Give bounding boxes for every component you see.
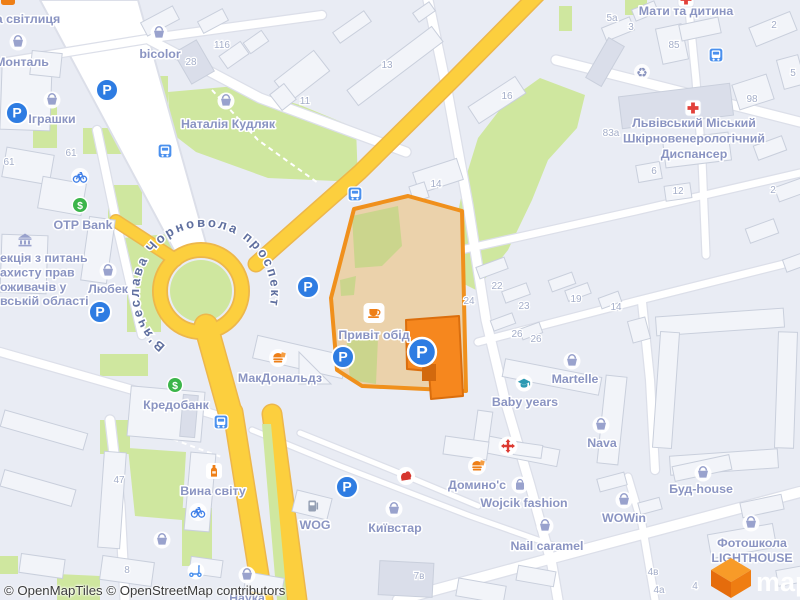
poi-label[interactable]: Київстар [368,521,422,535]
poi-label[interactable]: Іграшки [28,112,75,126]
svg-text:P: P [303,279,312,295]
bus-icon[interactable] [709,48,723,62]
housenumber: 22 [491,281,503,292]
shopcut-icon[interactable] [1,0,15,5]
housenumber: 13 [381,60,393,71]
parking-icon[interactable]: P [408,338,436,366]
medical-icon[interactable] [685,100,701,116]
housenumber: 4а [653,585,665,596]
cafe-icon[interactable] [364,303,385,323]
parking-icon[interactable]: P [96,79,118,101]
housenumber: 6 [651,166,657,177]
housenumber: 8 [124,565,130,576]
housenumber: 19 [570,294,582,305]
burger-icon[interactable] [269,349,287,367]
housenumber: 14 [610,302,622,313]
recycle-icon[interactable]: ♻ [634,64,650,80]
bottle-icon[interactable] [206,463,222,479]
basket-icon[interactable] [218,93,235,110]
svg-text:P: P [102,82,111,98]
maptiler-wordmark: maptiler [756,567,800,597]
housenumber: 14 [430,179,442,190]
housenumber: 5а [606,13,618,24]
housenumber: 61 [3,157,15,168]
bus-icon[interactable] [214,415,228,429]
map-canvas[interactable]: В'ячеслава Чорновола проспект 6161116281… [0,0,800,600]
basket-icon[interactable] [44,92,61,109]
maptiler-logo[interactable]: maptiler [703,550,800,600]
svg-text:P: P [95,304,104,320]
housenumber: 61 [65,148,77,159]
svg-text:♻: ♻ [636,65,648,80]
bike-icon[interactable] [189,503,207,521]
parking-icon[interactable]: P [6,102,28,124]
poi-label[interactable]: Буд-house [669,482,733,496]
svg-text:P: P [416,342,428,362]
housenumber: 24 [463,296,475,307]
housenumber: 16 [501,91,513,102]
basket-icon[interactable] [593,417,610,434]
basket-icon[interactable] [616,492,633,509]
svg-text:P: P [338,349,347,365]
poi-label[interactable]: Nava [587,436,617,450]
bag-icon[interactable] [512,477,529,494]
poi-label[interactable]: МакДональдз [238,371,322,385]
poi-label[interactable]: bicolor [139,47,180,61]
basket-icon[interactable] [695,465,712,482]
bike-icon[interactable] [71,168,89,186]
poi-label[interactable]: Домино'c [448,478,506,492]
basket-icon[interactable] [154,532,171,549]
housenumber: 12 [672,186,684,197]
attribution[interactable]: © OpenMapTiles © OpenStreetMap contribut… [4,583,285,598]
housenumber: 116 [214,40,230,51]
housenumber: 2 [770,185,776,196]
housenumber: 5 [790,68,796,79]
poi-label[interactable]: WOWin [602,511,646,525]
basket-icon[interactable] [10,34,27,51]
housenumber: 23 [518,301,530,312]
poi-label[interactable]: Wojcik fashion [480,496,567,510]
housenumber: 4в [648,567,659,578]
housenumber: 26 [530,334,542,345]
housenumber: 28 [185,57,197,68]
poi-label[interactable]: OTP Bank [54,218,113,232]
scooter-icon[interactable] [188,563,205,580]
atm-icon[interactable]: $ [167,377,184,394]
poi-label[interactable]: WOG [300,518,331,532]
svg-text:P: P [12,105,21,121]
basket-icon[interactable] [100,263,117,280]
basket-icon[interactable] [537,518,554,535]
housenumber: 47 [113,475,125,486]
housenumber: 2 [771,20,777,31]
bus-icon[interactable] [158,144,172,158]
gradcap-icon[interactable] [516,375,533,392]
poi-label[interactable]: Наталія Кудляк [181,117,276,131]
parking-icon[interactable]: P [336,476,358,498]
svg-text:$: $ [77,200,83,212]
burger-icon[interactable] [468,457,486,475]
housenumber: 26 [511,329,523,340]
poi-label[interactable]: Кредобанк [143,398,209,412]
poi-label[interactable]: Вина світу [180,484,246,498]
arrows-icon[interactable] [499,437,518,456]
poi-label[interactable]: Martelle [552,372,599,386]
housenumber: 7в [414,571,425,582]
poi-label[interactable]: а світлиця [0,12,60,26]
basket-icon[interactable] [564,353,581,370]
svg-text:P: P [342,479,351,495]
housenumber: 98 [746,94,758,105]
housenumber: 3 [628,22,634,33]
bus-icon[interactable] [348,187,362,201]
atm-icon[interactable]: $ [72,197,89,214]
redemblem-icon[interactable] [397,467,415,485]
parking-icon[interactable]: P [89,301,111,323]
housenumber: 11 [300,96,311,107]
poi-label[interactable]: Привіт обід [338,328,409,342]
poi-label[interactable]: Мати та дитина [639,4,734,18]
basket-icon[interactable] [386,501,403,518]
map-screenshot: { "attribution": "© OpenMapTiles © OpenS… [0,0,800,600]
basket-icon[interactable] [151,25,168,42]
parking-icon[interactable]: P [297,276,319,298]
poi-label[interactable]: Монталь [0,55,49,69]
housenumber: 4 [692,581,698,592]
poi-label[interactable]: Baby years [492,395,558,409]
poi-label[interactable]: Любек [88,282,129,296]
svg-text:$: $ [172,380,178,392]
parking-icon[interactable]: P [332,346,354,368]
basket-icon[interactable] [239,567,256,584]
basket-icon[interactable] [743,515,760,532]
housenumber: 83а [603,128,620,139]
housenumber: 85 [668,40,680,51]
poi-label[interactable]: Nail caramel [510,539,583,553]
